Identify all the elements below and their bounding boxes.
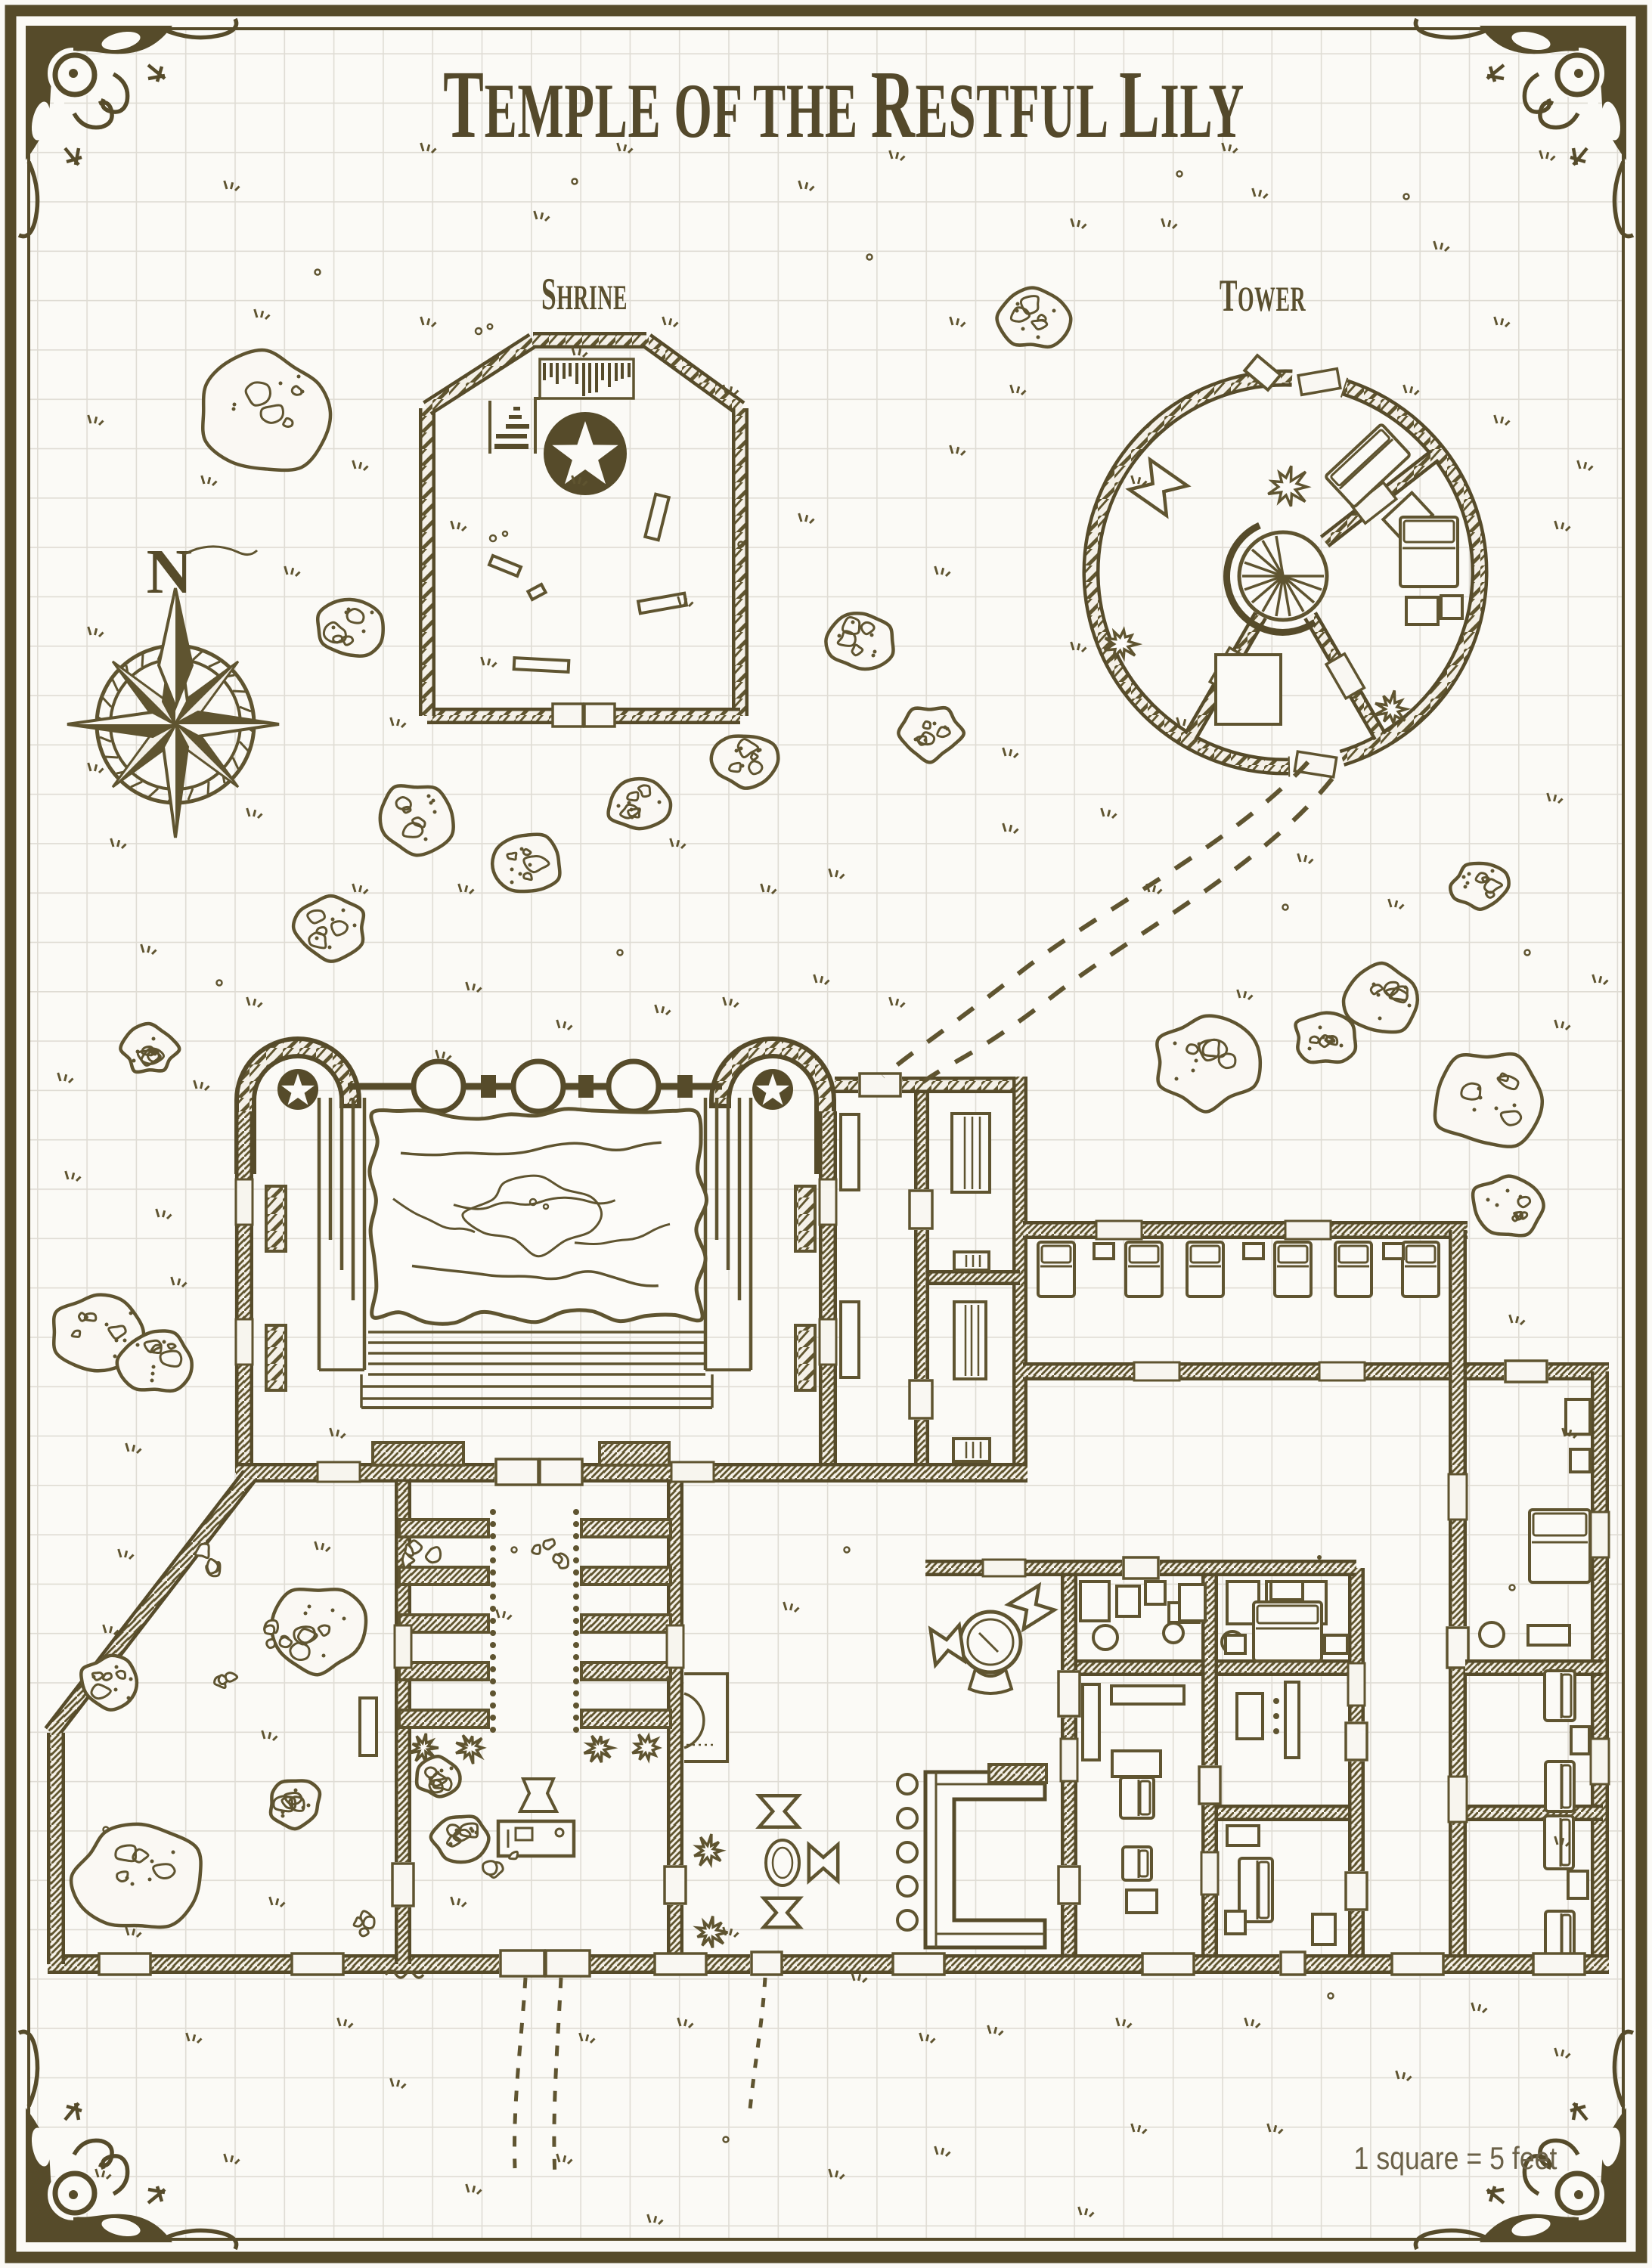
svg-text:TEMPLE OF THE RESTFUL LILY: TEMPLE OF THE RESTFUL LILY	[443, 52, 1244, 159]
svg-text:N: N	[147, 537, 193, 607]
svg-text:1 square = 5 feet: 1 square = 5 feet	[1354, 2141, 1557, 2176]
